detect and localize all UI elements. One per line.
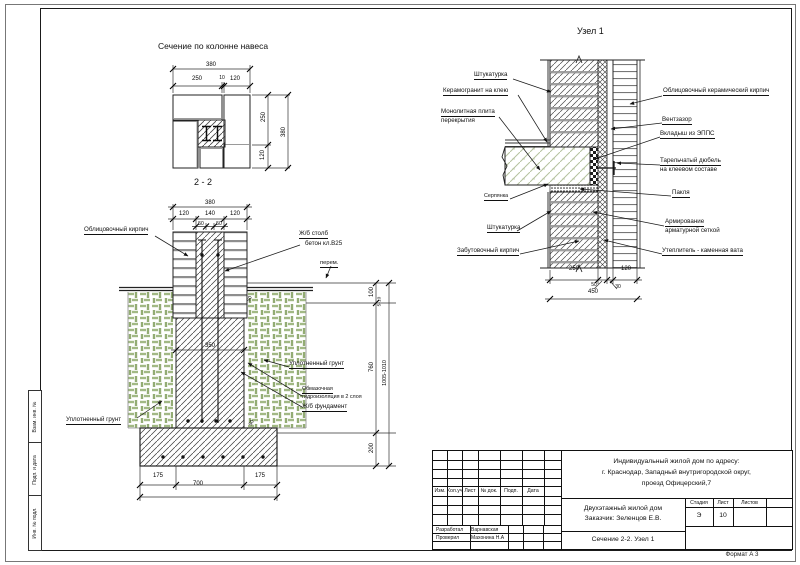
plan-dim-380: 380 [201, 62, 221, 68]
floor-finish-lines [505, 140, 550, 147]
tb-stage-value: Э [685, 512, 713, 519]
label-waterproofing-2: гидроизоляция в 2 слоя [302, 394, 362, 400]
fdim-50b: 50 [211, 221, 227, 227]
plan-dim-250: 250 [187, 76, 207, 82]
fdim-120l: 120 [174, 211, 194, 217]
soil-left [128, 292, 173, 428]
tb-sheet-value: 10 [713, 512, 733, 519]
tb-project-line2: г. Краснодар, Западный внутригородской о… [561, 469, 792, 476]
floor-slab [505, 147, 590, 185]
brick-pier-left [173, 232, 196, 318]
tb-stage-label: Стадия [685, 500, 713, 506]
label-soil-right: Уплотненный грунт [289, 360, 344, 369]
label-mesh-reinforcement-2: арматурной сеткой [665, 227, 720, 234]
label-stone-wool-insulation: Утеплитель - каменная вата [662, 247, 743, 256]
label-porcelain-tile: Керамогранит на клею [443, 87, 508, 96]
plan-title: Сечение по колонне навеса [158, 41, 268, 51]
label-plaster-bottom: Штукатурка [487, 224, 520, 233]
ndim-30: 30 [612, 284, 624, 290]
fdim-50a: 50 [193, 221, 209, 227]
label-oakum: Пакля [672, 189, 690, 198]
tb-object-line1: Двухэтажный жилой дом [561, 505, 685, 512]
label-serpyanka: Серпянка [484, 193, 508, 201]
label-disc-dowel-1: Тарельчатый дюбель [660, 157, 721, 166]
label-rc-column: Ж/б столб [299, 230, 328, 239]
label-monolithic-slab-2: перекрытия [441, 117, 475, 124]
stamp-box-vzam: Взам. инв. № [28, 390, 42, 444]
label-monolithic-slab-1: Монолитная плита [441, 108, 495, 117]
label-plaster-top: Штукатурка [474, 71, 507, 80]
fdim-120r: 120 [225, 211, 245, 217]
tb-checked-name: Махонина Н.А [471, 535, 507, 541]
title-block: Изм. Кол.уч Лист № док. Подп. Дата Индив… [432, 450, 793, 550]
stamp-box-inv-label: Инв. № подл. [32, 507, 38, 538]
fdim-5-10: 5-10 [378, 282, 383, 322]
tb-object-line2: Заказчик: Зеленцов Е.В. [561, 515, 685, 522]
label-epps-insert: Вкладыш из ЭППС [660, 130, 715, 139]
label-variable: перем. [320, 260, 338, 268]
tb-col-kol: Кол.уч [447, 488, 462, 494]
foundation-column [176, 318, 244, 428]
tb-project-line1: Индивидуальный жилой дом по адресу: [561, 458, 792, 465]
plan-dim-side-250: 250 [261, 97, 267, 137]
concrete-core [196, 232, 224, 318]
tb-project-line3: проезд Офицерский,7 [561, 480, 792, 487]
oakum-strip [550, 185, 598, 192]
tb-col-data: Дата [522, 488, 544, 494]
brick-pier-right [224, 232, 247, 318]
stamp-box-podp: Подп. и дата [28, 442, 42, 497]
tb-doc-title: Сечение 2-2. Узел 1 [561, 536, 685, 543]
ndim-450: 450 [583, 289, 603, 295]
insulation-layer [598, 60, 607, 268]
ndim-250: 250 [564, 266, 584, 272]
label-air-gap: Вентзазор [662, 116, 692, 125]
tb-col-izm: Изм. [433, 488, 447, 494]
epps-insert [590, 147, 598, 185]
fdim-700: 700 [188, 481, 208, 487]
plan-concrete-core [198, 120, 225, 147]
format-label: Формат А 3 [712, 551, 772, 558]
label-facing-ceramic-brick: Облицовочный керамический кирпич [663, 87, 769, 96]
tb-developed-label: Разработал [434, 527, 472, 533]
fdim-total-height: 1005-1010 [382, 343, 388, 403]
fdim-350: 350 [200, 343, 220, 349]
plan-section-mark: 2 - 2 [194, 177, 212, 187]
tb-sheets-label: Листов [733, 500, 766, 506]
label-waterproofing-1: Обмазочная [302, 386, 333, 394]
label-facing-brick: Облицовочный кирпич [84, 226, 148, 235]
label-soil-left: Уплотненный грунт [66, 416, 121, 425]
stamp-box-podp-label: Подп. и дата [32, 455, 38, 484]
fdim-200: 200 [369, 428, 375, 468]
tb-sheet-label: Лист [713, 500, 733, 506]
label-rc-column-concrete: бетон кл.В25 [305, 240, 342, 247]
plan-dim-120: 120 [225, 76, 245, 82]
ndim-120: 120 [616, 266, 636, 272]
label-mesh-reinforcement-1: Армирование [665, 218, 704, 227]
foundation-drawing [55, 195, 405, 505]
label-disc-dowel-2: на клеевом составе [660, 166, 717, 173]
air-gap-lines [607, 60, 613, 268]
fdim-100: 100 [369, 272, 375, 312]
label-backing-brick: Забутовочный кирпич [457, 247, 519, 256]
tb-col-doc: № док. [478, 488, 500, 494]
stamp-box-vzam-label: Взам. инв. № [32, 402, 38, 433]
plan-dim-side-120: 120 [260, 135, 266, 175]
fdim-175r: 175 [250, 473, 270, 479]
tb-checked-label: Проверил [434, 535, 472, 541]
drawing-sheet: Взам. инв. № Подп. и дата Инв. № подл. С… [0, 0, 800, 565]
tb-col-podp: Подп. [500, 488, 522, 494]
fdim-140: 140 [200, 211, 220, 217]
fdim-760: 760 [369, 347, 375, 387]
fdim-380: 380 [200, 200, 220, 206]
ndim-50: 50 [588, 282, 600, 288]
tb-col-list: Лист [462, 488, 478, 494]
stamp-box-inv: Инв. № подл. [28, 495, 42, 551]
plan-dim-side-380: 380 [281, 112, 287, 152]
fdim-175l: 175 [148, 473, 168, 479]
foundation-footing [140, 428, 277, 466]
label-rc-footing: Ж/б фундамент [302, 403, 347, 412]
tb-developed-name: Варнавская [471, 527, 507, 533]
